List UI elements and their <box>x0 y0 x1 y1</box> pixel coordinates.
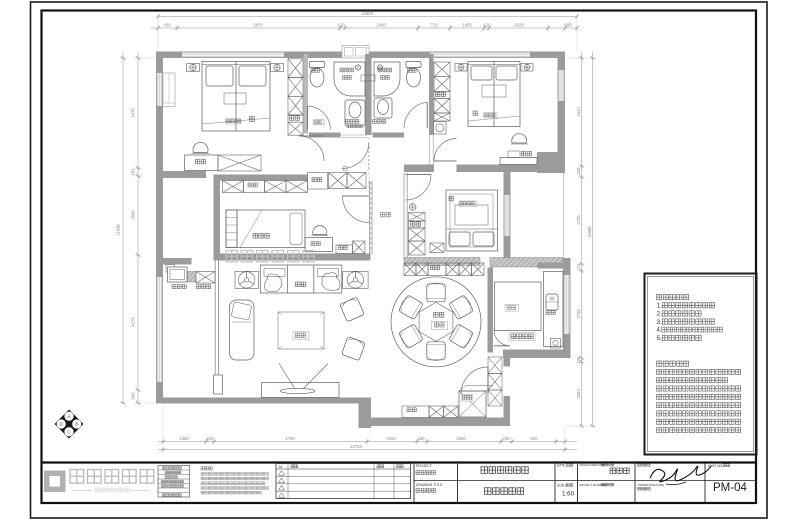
svg-text:5.: 5. <box>657 335 663 342</box>
svg-text:DWG NO.: DWG NO. <box>708 464 723 468</box>
svg-text:500: 500 <box>530 436 538 441</box>
svg-text:2500: 2500 <box>131 210 136 220</box>
svg-text:240: 240 <box>206 436 214 441</box>
svg-text:3413: 3413 <box>576 107 581 117</box>
svg-text:150: 150 <box>417 436 425 441</box>
svg-text:4.: 4. <box>657 327 662 334</box>
svg-text:2.: 2. <box>657 311 663 318</box>
svg-text:SCALE: SCALE <box>557 484 567 488</box>
svg-text:3470: 3470 <box>131 108 136 118</box>
svg-text:1.: 1. <box>657 303 663 310</box>
svg-text:715: 715 <box>430 22 438 27</box>
svg-text:PM-04: PM-04 <box>713 482 747 494</box>
svg-text:3.: 3. <box>657 319 663 326</box>
svg-text:4270: 4270 <box>131 317 136 327</box>
svg-text:3320: 3320 <box>514 22 524 27</box>
svg-text:255: 255 <box>131 168 136 176</box>
svg-text:2760: 2760 <box>576 309 581 319</box>
svg-text:690: 690 <box>131 392 136 400</box>
svg-text:2580: 2580 <box>456 436 466 441</box>
svg-text:1:60: 1:60 <box>562 491 575 498</box>
svg-text:2755: 2755 <box>576 215 581 225</box>
svg-text:120: 120 <box>576 356 581 364</box>
svg-text:11600: 11600 <box>116 224 121 236</box>
svg-text:12900: 12900 <box>361 11 374 16</box>
svg-text:120: 120 <box>483 22 491 27</box>
svg-text:1360: 1360 <box>179 436 189 441</box>
svg-text:B: B <box>75 422 78 427</box>
svg-text:11600: 11600 <box>587 226 592 238</box>
svg-text:211: 211 <box>576 263 581 270</box>
svg-text:120: 120 <box>337 22 345 27</box>
svg-text:2870: 2870 <box>253 22 263 27</box>
svg-text:A: A <box>67 414 70 419</box>
svg-text:4700: 4700 <box>285 436 295 441</box>
svg-text:345: 345 <box>576 167 581 175</box>
svg-text:230: 230 <box>502 436 510 441</box>
svg-text:1060: 1060 <box>386 436 396 441</box>
svg-text:2093: 2093 <box>576 389 581 399</box>
svg-text:DRAWING TITLE: DRAWING TITLE <box>416 483 443 487</box>
svg-text:12750: 12750 <box>350 444 363 449</box>
svg-text:PROJECT: PROJECT <box>416 464 432 468</box>
svg-text:OWNER SIGNATURE: OWNER SIGNATURE <box>638 483 665 487</box>
svg-text:450: 450 <box>163 22 171 27</box>
svg-text:1455: 1455 <box>462 22 472 27</box>
svg-text:DATE: DATE <box>557 464 565 468</box>
svg-text:2400: 2400 <box>376 22 386 27</box>
svg-text:680: 680 <box>564 22 572 27</box>
svg-text:A1: A1 <box>279 465 283 469</box>
